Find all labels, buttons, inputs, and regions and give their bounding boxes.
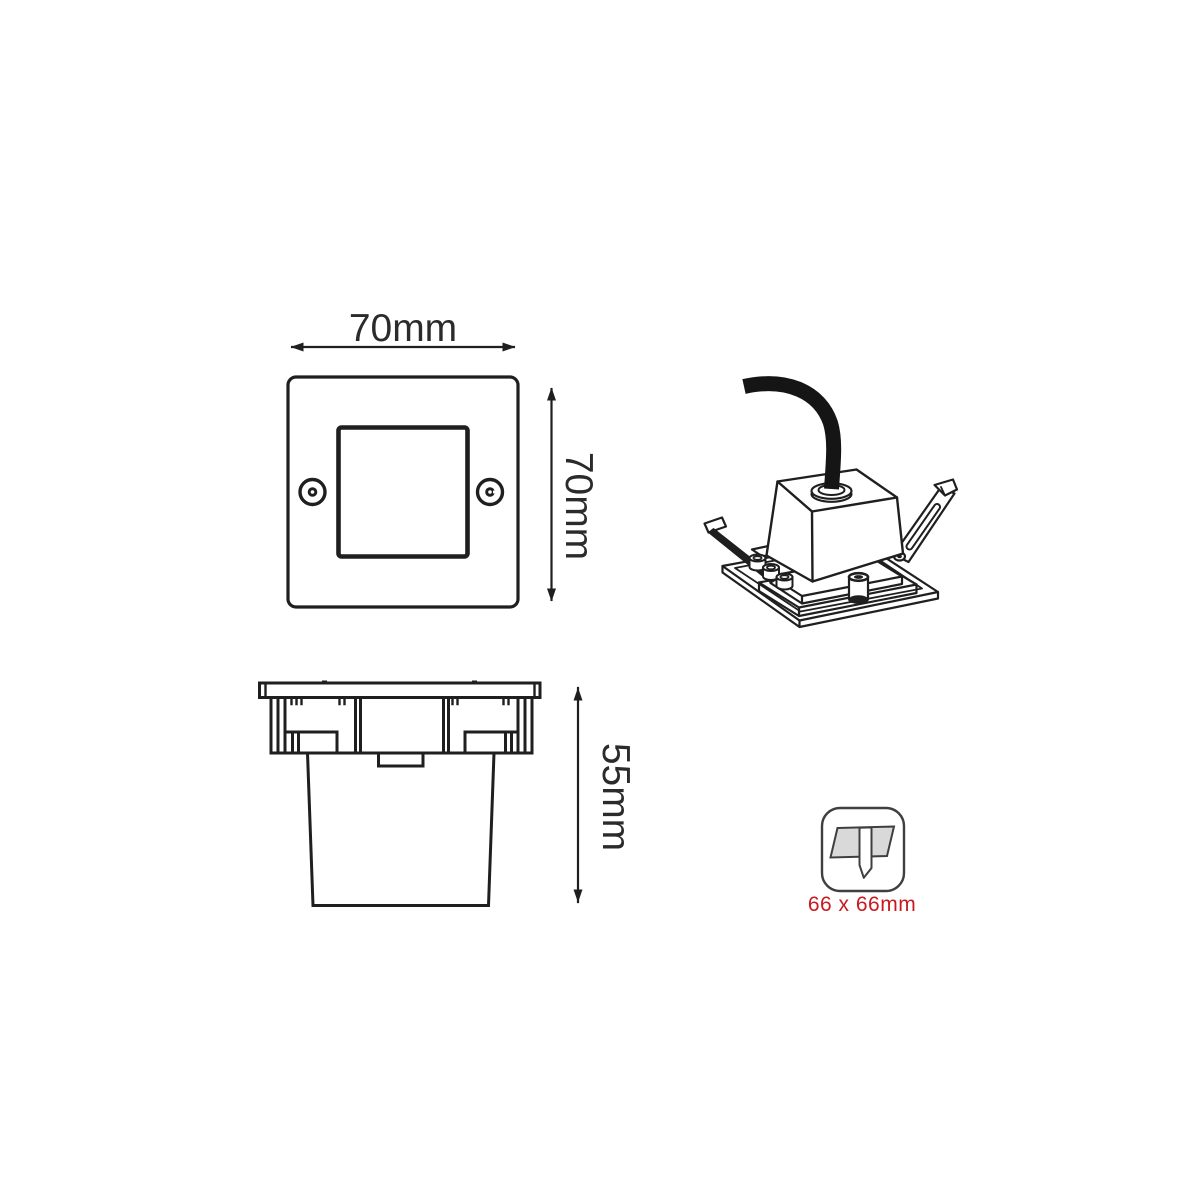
front-lens (339, 428, 468, 557)
front-height-label: 70mm (557, 452, 600, 560)
power-cable (744, 384, 834, 489)
front-height-dimension: 70mm (552, 388, 601, 601)
standoff-base (849, 595, 868, 603)
screw-socket-hole (488, 490, 492, 494)
housing-inner-walls (278, 698, 525, 754)
housing-step-right (465, 732, 518, 753)
insert-arrow (860, 827, 872, 877)
housing-body (271, 698, 532, 754)
can-top-notch (379, 754, 424, 766)
front-standoff (849, 573, 868, 603)
flange-nub (322, 681, 327, 684)
technical-drawing: 70mm 70mm (0, 0, 1200, 1200)
screw-socket-hole (311, 490, 315, 494)
screw-socket-notch (493, 491, 496, 494)
cutout-size-label: 66 x 66mm (808, 893, 916, 916)
flange-nub (472, 681, 477, 684)
front-width-label: 70mm (349, 307, 457, 350)
side-depth-dimension: 55mm (578, 688, 637, 902)
side-view: 55mm (260, 681, 638, 906)
recessed-can (308, 753, 495, 906)
flange-bar (260, 683, 541, 698)
terminal-screw (777, 574, 793, 590)
iso-view (705, 384, 958, 627)
housing-step-left (285, 732, 337, 753)
front-width-dimension: 70mm (291, 307, 515, 350)
spec-sheet-page: 70mm 70mm (0, 0, 1200, 1200)
standoff-hole (854, 575, 863, 579)
side-depth-label: 55mm (594, 743, 637, 851)
cutout-section: 66 x 66mm (808, 808, 916, 916)
front-view: 70mm 70mm (288, 307, 600, 607)
